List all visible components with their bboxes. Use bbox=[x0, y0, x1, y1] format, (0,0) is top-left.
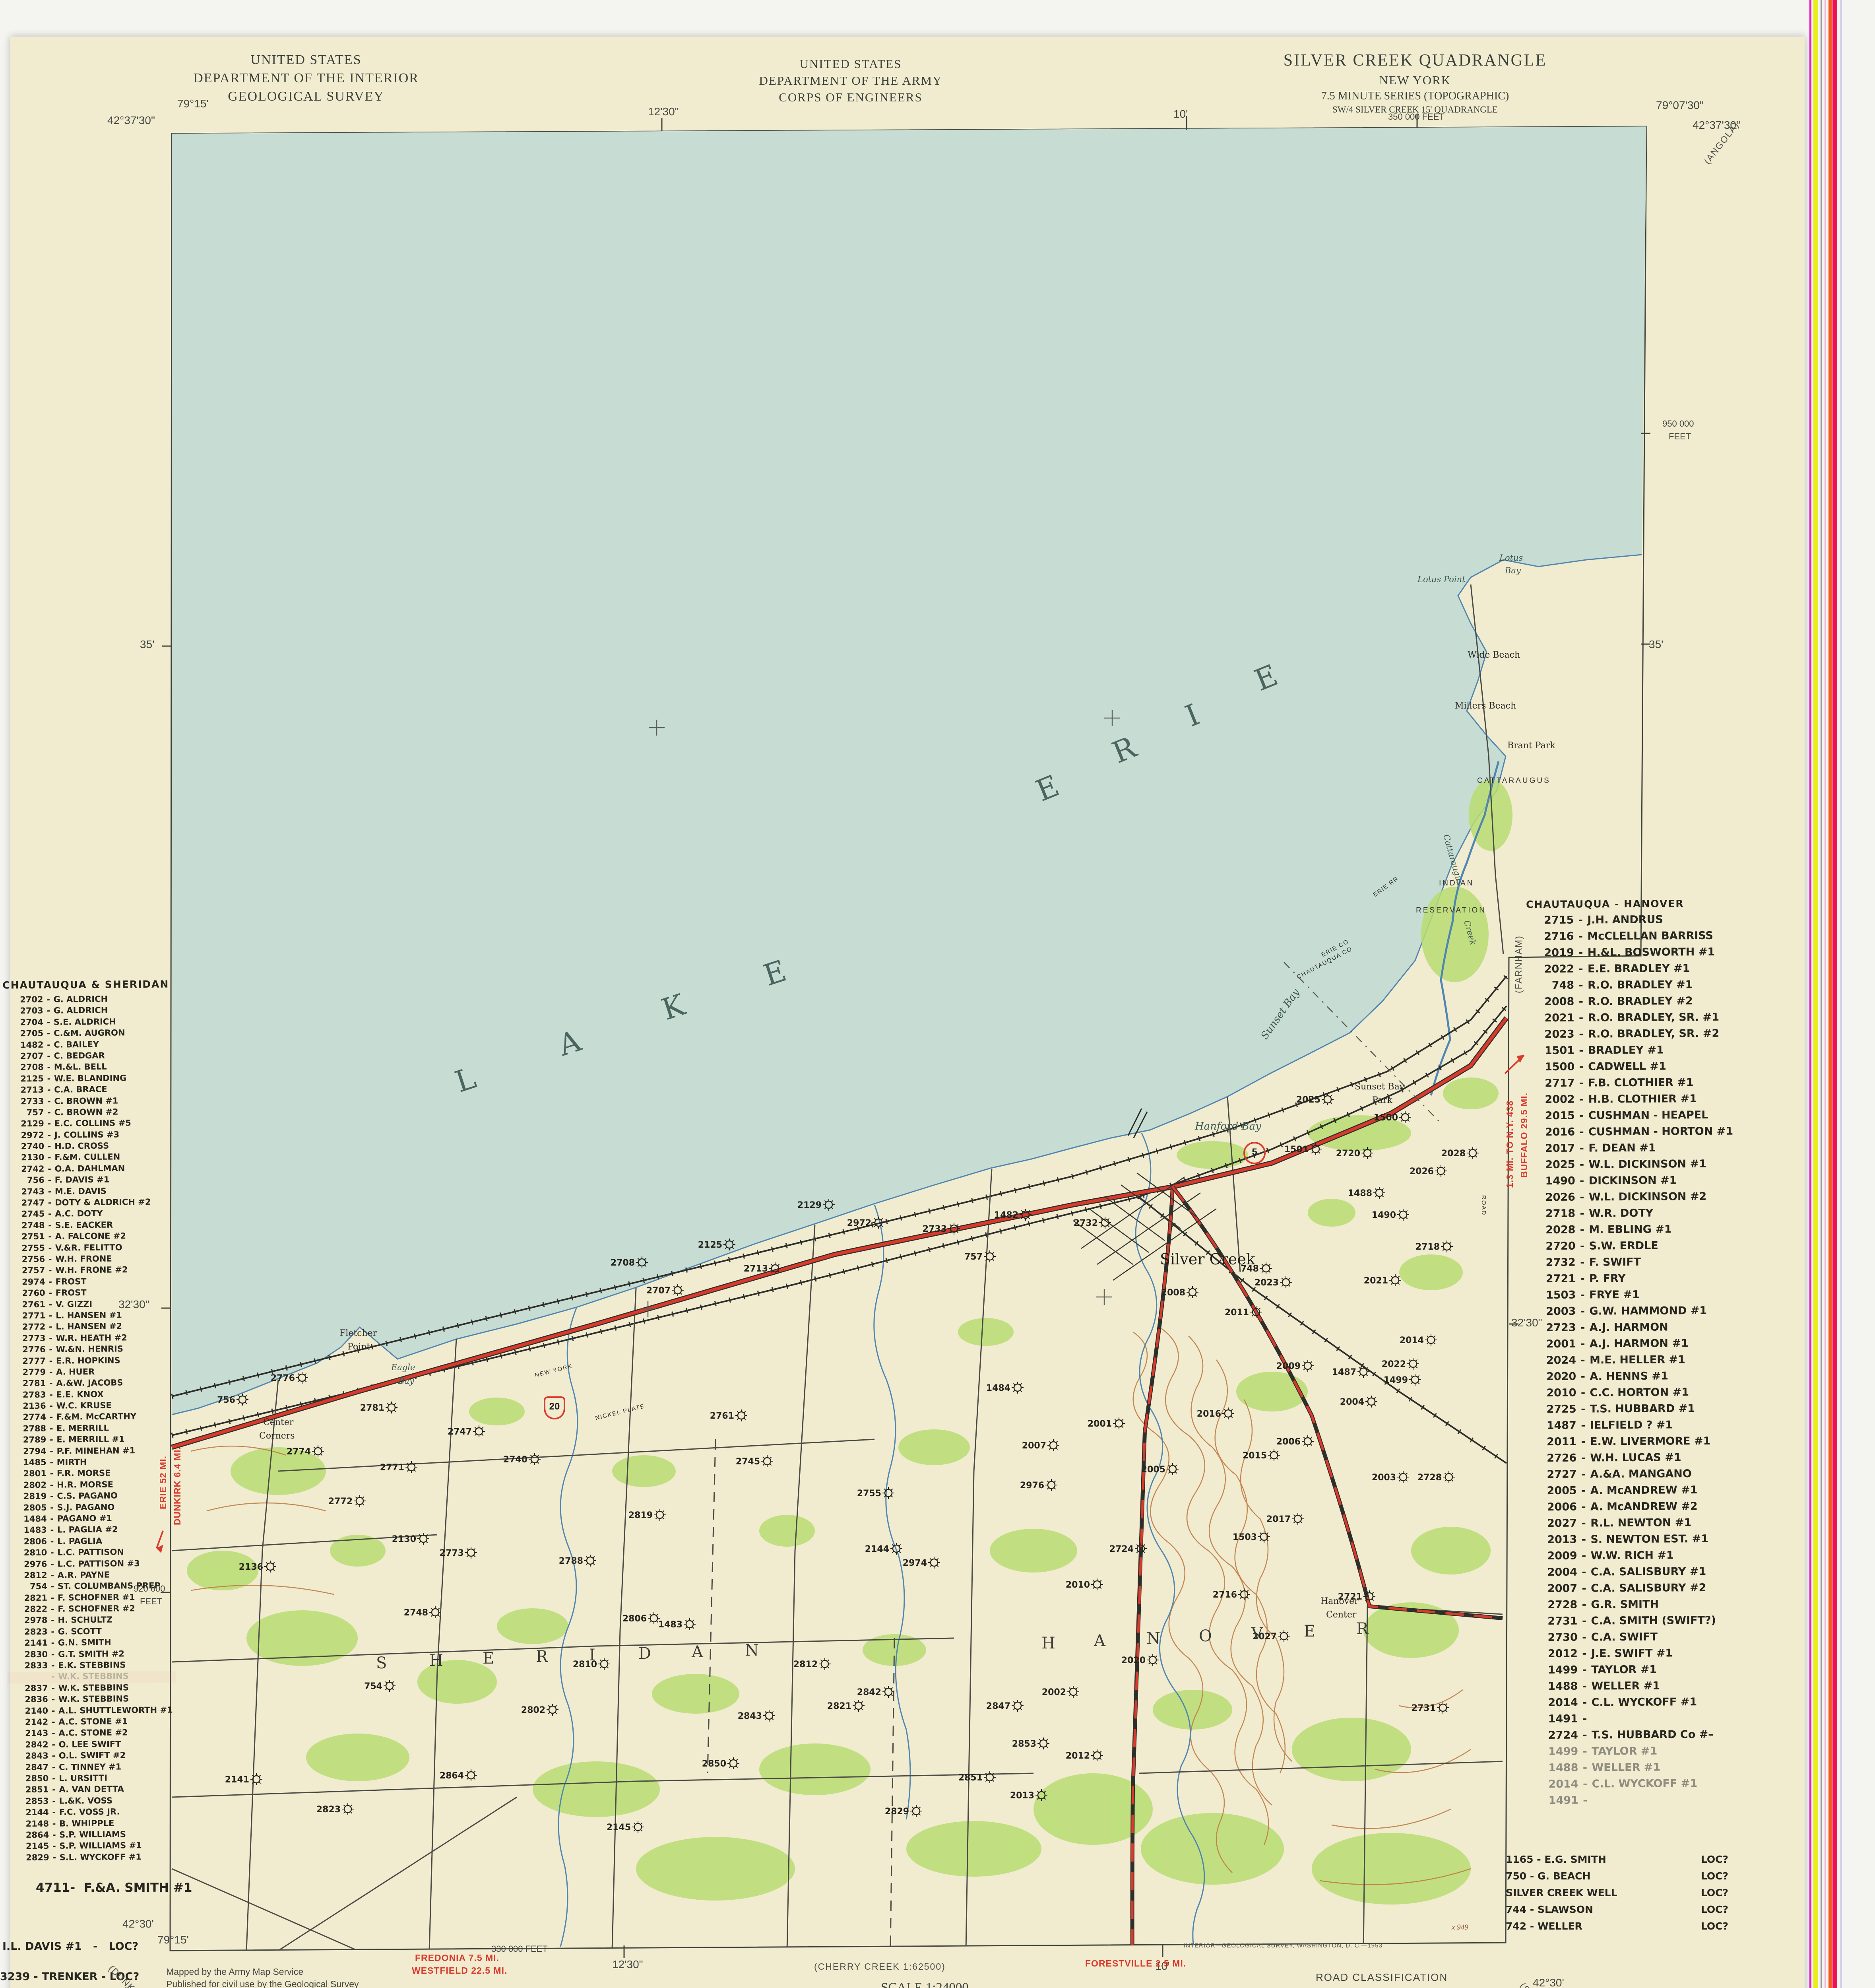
header-usgs: UNITED STATES DEPARTMENT OF THE INTERIOR… bbox=[167, 51, 445, 106]
dash: - bbox=[48, 1661, 58, 1672]
dash: - bbox=[49, 1796, 59, 1807]
dash: - bbox=[45, 1288, 56, 1300]
well-list-entry: 2972-J. COLLINS #3 bbox=[4, 1129, 173, 1142]
well-owner: O. LEE SWIFT bbox=[59, 1739, 121, 1751]
well-list-entry: 2014-C.L. WYCKOFF #1 bbox=[1531, 1776, 1875, 1795]
well-number: 1482 bbox=[3, 1040, 43, 1051]
svg-text:1487: 1487 bbox=[1332, 1367, 1356, 1377]
dash: - bbox=[45, 1232, 55, 1243]
well-owner: F. SCHOFNER #1 bbox=[58, 1592, 135, 1604]
well-list-entry: 1490-DICKINSON #1 bbox=[1528, 1173, 1875, 1192]
well-number: 2751 bbox=[4, 1232, 45, 1243]
svg-text:754: 754 bbox=[364, 1681, 382, 1691]
map-label: E bbox=[1304, 1623, 1319, 1640]
well-list-entry: 2823-G. SCOTT bbox=[7, 1626, 176, 1638]
svg-text:2141: 2141 bbox=[225, 1775, 249, 1785]
well-list-entry: 2001-A.J. HARMON #1 bbox=[1528, 1336, 1875, 1355]
well-owner: R.L. NEWTON #1 bbox=[1590, 1516, 1691, 1533]
dash: - bbox=[1577, 1582, 1591, 1598]
well-number: 2776 bbox=[5, 1345, 46, 1356]
well-list-entry: 1503-FRYE #1 bbox=[1528, 1287, 1875, 1306]
well-number: 2715 bbox=[1526, 914, 1574, 931]
well-number: 2143 bbox=[8, 1728, 48, 1740]
loc-name: 744 - SLAWSON bbox=[1506, 1904, 1593, 1920]
well-owner: A.R. PAYNE bbox=[58, 1570, 110, 1582]
well-number: 2717 bbox=[1527, 1077, 1574, 1094]
well-number: 2850 bbox=[8, 1774, 48, 1785]
well-list-entry: 2732-F. SWIFT bbox=[1528, 1255, 1875, 1273]
well-list-entry: 2756-W.H. FRONE bbox=[4, 1254, 173, 1266]
well-list-entry: 2836-W.K. STEBBINS bbox=[8, 1694, 176, 1706]
well-number: 2802 bbox=[6, 1480, 47, 1492]
well-list-entry: 2019-H.&L. BOSWORTH #1 bbox=[1526, 945, 1875, 963]
dash: - bbox=[49, 1841, 59, 1853]
well-number: 1488 bbox=[1530, 1762, 1578, 1778]
well-list-entry: 2745-A.C. DOTY bbox=[4, 1208, 173, 1221]
well-list-entry: 2772-L. HANSEN #2 bbox=[5, 1321, 174, 1334]
dash: - bbox=[1577, 1468, 1590, 1484]
well-number: 2794 bbox=[6, 1446, 46, 1458]
well-owner: E. MERRILL #1 bbox=[56, 1435, 125, 1446]
well-owner: E.E. KNOX bbox=[56, 1389, 103, 1401]
dash: - bbox=[45, 1266, 55, 1277]
well-number: 2028 bbox=[1528, 1224, 1575, 1241]
margin-label: FEET bbox=[1669, 432, 1691, 441]
dash: - bbox=[48, 1638, 58, 1650]
svg-text:1500: 1500 bbox=[1374, 1113, 1398, 1123]
well-number: 2713 bbox=[3, 1085, 44, 1097]
well-list-entry: 2716-McCLELLAN BARRISS bbox=[1526, 929, 1875, 947]
well-list-entry: 2733-C. BROWN #1 bbox=[3, 1095, 172, 1108]
well-number: 2731 bbox=[1530, 1615, 1577, 1632]
well-owner: W.K. STEBBINS bbox=[58, 1672, 129, 1683]
well-list-entry: 2145-S.P. WILLIAMS #1 bbox=[8, 1840, 177, 1853]
svg-text:2755: 2755 bbox=[857, 1489, 881, 1499]
quad-title: SILVER CREEK QUADRANGLE bbox=[1232, 49, 1598, 72]
well-list-entry: 2016-CUSHMAN - HORTON #1 bbox=[1527, 1124, 1875, 1143]
svg-text:2812: 2812 bbox=[793, 1660, 818, 1670]
well-number: 2002 bbox=[1527, 1093, 1575, 1110]
margin-label: 79°15' bbox=[177, 98, 209, 109]
dash: - bbox=[47, 1536, 57, 1548]
well-number: 2974 bbox=[4, 1277, 45, 1289]
well-number: 2789 bbox=[6, 1435, 46, 1446]
well-number: 2136 bbox=[6, 1401, 46, 1413]
well-number: 2747 bbox=[4, 1198, 45, 1209]
svg-text:2847: 2847 bbox=[986, 1701, 1010, 1711]
svg-text:2012: 2012 bbox=[1066, 1751, 1090, 1761]
well-list-entry: 2783-E.E. KNOX bbox=[5, 1389, 174, 1401]
well-list-entry: 2728-G.R. SMITH bbox=[1530, 1597, 1875, 1615]
well-number: 2978 bbox=[7, 1615, 47, 1627]
well-owner: W.K. STEBBINS bbox=[58, 1694, 129, 1706]
loc-entry: 742 - WELLERLOC? bbox=[1506, 1920, 1728, 1937]
svg-text:2009: 2009 bbox=[1276, 1361, 1301, 1371]
well-owner: TAYLOR #1 bbox=[1592, 1745, 1657, 1762]
well-number: 2728 bbox=[1530, 1599, 1577, 1615]
header-army-line1: UNITED STATES bbox=[712, 56, 990, 72]
well-list-entry: 2023-R.O. BRADLEY, SR. #2 bbox=[1527, 1027, 1875, 1045]
well-list-entry: 2024-M.E. HELLER #1 bbox=[1528, 1353, 1875, 1371]
map-label: Bay bbox=[1505, 566, 1521, 575]
header-army-line3: CORPS OF ENGINEERS bbox=[712, 89, 990, 106]
well-list-entry: 2011-E.W. LIVERMORE #1 bbox=[1529, 1434, 1875, 1452]
margin-label: FREDONIA 7.5 MI. bbox=[415, 1953, 499, 1963]
loc-entry: 744 - SLAWSONLOC? bbox=[1506, 1904, 1728, 1920]
dash: - bbox=[1576, 1321, 1590, 1338]
well-number: 2703 bbox=[3, 1006, 43, 1017]
well-list-entry: 2731-C.A. SMITH (SWIFT?) bbox=[1530, 1613, 1875, 1632]
well-owner: C.A. BRACE bbox=[54, 1085, 107, 1096]
well-number: 1484 bbox=[6, 1514, 47, 1526]
well-list-entry: 2017-F. DEAN #1 bbox=[1527, 1141, 1875, 1159]
svg-text:1499: 1499 bbox=[1384, 1375, 1408, 1385]
well-list-entry: 2008-R.O. BRADLEY #2 bbox=[1526, 994, 1875, 1012]
loc-name: 750 - G. BEACH bbox=[1506, 1870, 1590, 1887]
well-owner: J.E. SWIFT #1 bbox=[1591, 1647, 1673, 1664]
well-number: 2144 bbox=[8, 1807, 49, 1819]
map-label: I bbox=[589, 1647, 599, 1664]
dash: - bbox=[48, 1774, 59, 1785]
well-owner: E.C. COLLINS #5 bbox=[54, 1118, 131, 1130]
dash: - bbox=[1578, 1680, 1591, 1696]
well-number: 2976 bbox=[6, 1559, 47, 1571]
dash: - bbox=[1574, 963, 1588, 979]
svg-text:2773: 2773 bbox=[440, 1548, 464, 1558]
well-number bbox=[7, 1672, 48, 1683]
well-owner: W.L. DICKINSON #1 bbox=[1588, 1158, 1706, 1175]
well-number: 2725 bbox=[1529, 1403, 1576, 1420]
svg-text:2707: 2707 bbox=[646, 1286, 671, 1296]
map-label: Eagle bbox=[391, 1363, 415, 1372]
well-list-entry: 1500-CADWELL #1 bbox=[1527, 1059, 1875, 1077]
well-owner: A.C. STONE #2 bbox=[58, 1728, 128, 1740]
well-number: 2851 bbox=[8, 1785, 48, 1796]
svg-text:2716: 2716 bbox=[1213, 1590, 1237, 1600]
well-owner: H. SCHULTZ bbox=[58, 1615, 112, 1627]
well-number: 2718 bbox=[1528, 1208, 1575, 1224]
dash: - bbox=[47, 1503, 57, 1514]
svg-text:2776: 2776 bbox=[271, 1373, 295, 1383]
well-number: 2006 bbox=[1529, 1501, 1577, 1518]
well-owner: C.L. WYCKOFF #1 bbox=[1592, 1777, 1698, 1794]
dash: - bbox=[44, 1108, 54, 1119]
svg-text:2829: 2829 bbox=[885, 1807, 909, 1817]
dash: - bbox=[1574, 1044, 1588, 1061]
well-list-entry: 2833-E.K. STEBBINS bbox=[7, 1660, 176, 1672]
well-owner: W.L. DICKINSON #2 bbox=[1589, 1190, 1707, 1208]
svg-text:1483: 1483 bbox=[658, 1620, 683, 1630]
well-list-entry: 2777-E.R. HOPKINS bbox=[5, 1355, 174, 1367]
map-label: N bbox=[1146, 1630, 1164, 1647]
well-number: 2833 bbox=[7, 1661, 48, 1672]
dash: - bbox=[1574, 1012, 1588, 1028]
loc-question: LOC? bbox=[1701, 1904, 1728, 1920]
dash: - bbox=[1576, 1289, 1589, 1305]
dash: - bbox=[1578, 1696, 1592, 1712]
svg-text:2821: 2821 bbox=[827, 1701, 851, 1711]
map-label: Millers Beach bbox=[1455, 701, 1516, 711]
map-label: Center bbox=[1326, 1610, 1356, 1619]
well-owner: C.L. WYCKOFF #1 bbox=[1592, 1696, 1697, 1712]
well-owner: G.N. SMITH bbox=[58, 1638, 111, 1649]
header-army: UNITED STATES DEPARTMENT OF THE ARMY COR… bbox=[712, 56, 990, 106]
dash: - bbox=[47, 1469, 57, 1480]
dash: - bbox=[45, 1322, 56, 1334]
well-list-entry: 2730-C.A. SWIFT bbox=[1530, 1630, 1875, 1648]
well-owner: H.&L. BOSWORTH #1 bbox=[1588, 946, 1715, 963]
well-owner: W.R. DOTY bbox=[1589, 1207, 1653, 1224]
well-number: 1490 bbox=[1528, 1175, 1575, 1192]
well-list-entry: 1487-IELFIELD ? #1 bbox=[1529, 1418, 1875, 1436]
well-list-entry: -W.K. STEBBINS bbox=[7, 1671, 176, 1683]
well-number: 2774 bbox=[6, 1412, 46, 1424]
well-number: 1491 bbox=[1531, 1794, 1578, 1811]
svg-text:2144: 2144 bbox=[865, 1544, 889, 1554]
well-number: 2704 bbox=[3, 1017, 43, 1029]
well-number: 2025 bbox=[1527, 1159, 1575, 1175]
well-owner: IELFIELD ? #1 bbox=[1590, 1419, 1673, 1435]
well-list-entry: 2801-F.R. MORSE bbox=[6, 1468, 175, 1480]
well-list-entry: 1484-PAGANO #1 bbox=[6, 1513, 175, 1525]
well-owner: G.W. HAMMOND #1 bbox=[1589, 1305, 1707, 1322]
well-owner: FROST bbox=[56, 1288, 87, 1299]
well-list-entry: 2747-DOTY & ALDRICH #2 bbox=[4, 1197, 173, 1209]
well-list-entry: 2708-M.&L. BELL bbox=[3, 1062, 172, 1074]
well-number: 2732 bbox=[1528, 1256, 1576, 1273]
map-label: Wide Beach bbox=[1468, 650, 1520, 660]
header-usgs-line1: UNITED STATES bbox=[167, 51, 445, 69]
svg-text:2850: 2850 bbox=[702, 1759, 726, 1769]
dash: - bbox=[47, 1525, 57, 1537]
map-label: V bbox=[1251, 1625, 1267, 1642]
margin-label: FEET bbox=[140, 1597, 162, 1606]
well-list-entry: 2002-H.B. CLOTHIER #1 bbox=[1527, 1092, 1875, 1110]
dash: - bbox=[47, 1491, 57, 1503]
well-list-entry: 2740-H.D. CROSS bbox=[4, 1141, 173, 1153]
dash: - bbox=[48, 1762, 59, 1774]
map-label: Park bbox=[1372, 1096, 1392, 1105]
dash: - bbox=[1575, 1175, 1589, 1191]
well-list-entry: 2148-B. WHIPPLE bbox=[8, 1818, 177, 1830]
well-number: 2011 bbox=[1529, 1436, 1576, 1452]
dash: - bbox=[1576, 1370, 1590, 1386]
well-list-entry: 2007-C.A. SALISBURY #2 bbox=[1530, 1581, 1875, 1599]
well-list-entry: 2015-CUSHMAN - HEAPEL bbox=[1527, 1108, 1875, 1126]
well-number: 2836 bbox=[8, 1695, 48, 1706]
well-list-entry: 2850-L. URSITTI bbox=[8, 1773, 177, 1785]
svg-text:1484: 1484 bbox=[986, 1383, 1010, 1393]
svg-text:2732: 2732 bbox=[1074, 1218, 1098, 1228]
well-owner: W.H. FRONE bbox=[55, 1254, 112, 1266]
well-list-entry: 2851-A. VAN DETTA bbox=[8, 1784, 177, 1796]
well-owner: PAGANO #1 bbox=[57, 1514, 112, 1525]
well-number: 2730 bbox=[1530, 1631, 1578, 1648]
well-list-entry: 2810-L.C. PATTISON bbox=[6, 1547, 175, 1559]
well-owner: C.A. SALISBURY #1 bbox=[1591, 1565, 1706, 1582]
well-owner: A. HUER bbox=[56, 1367, 95, 1378]
dash: - bbox=[44, 1130, 54, 1142]
dash: - bbox=[46, 1345, 56, 1356]
well-list-entry: 2707-C. BEDGAR bbox=[3, 1050, 172, 1062]
svg-text:2006: 2006 bbox=[1276, 1437, 1301, 1447]
svg-text:1503: 1503 bbox=[1233, 1532, 1257, 1542]
svg-text:2819: 2819 bbox=[628, 1510, 653, 1520]
map-label: S bbox=[376, 1655, 391, 1672]
well-owner: A. HENNS #1 bbox=[1590, 1370, 1668, 1386]
well-owner: B. WHIPPLE bbox=[59, 1818, 114, 1830]
svg-text:2731: 2731 bbox=[1412, 1703, 1436, 1713]
well-owner: O.L. SWIFT #2 bbox=[59, 1751, 126, 1763]
well-list-entry: 2022-E.E. BRADLEY #1 bbox=[1526, 961, 1875, 980]
well-owner: M. EBLING #1 bbox=[1589, 1223, 1672, 1240]
svg-text:2014: 2014 bbox=[1400, 1336, 1424, 1345]
loc-question: LOC? bbox=[1701, 1854, 1728, 1870]
svg-text:2007: 2007 bbox=[1022, 1441, 1046, 1451]
svg-text:2713: 2713 bbox=[744, 1264, 768, 1274]
margin-label: 920 000 bbox=[134, 1584, 165, 1593]
well-owner: FRYE #1 bbox=[1589, 1289, 1640, 1305]
well-number: 2148 bbox=[8, 1819, 49, 1830]
dash: - bbox=[48, 1728, 58, 1740]
well-number: 2012 bbox=[1530, 1648, 1578, 1664]
dash: - bbox=[1575, 1240, 1589, 1256]
svg-text:2145: 2145 bbox=[607, 1823, 631, 1833]
svg-text:1490: 1490 bbox=[1372, 1210, 1396, 1220]
well-list-entry: 2843-O.L. SWIFT #2 bbox=[8, 1750, 177, 1763]
well-owner: S.J. PAGANO bbox=[57, 1502, 114, 1514]
well-number: 2812 bbox=[7, 1571, 47, 1582]
well-owner: C. BAILEY bbox=[54, 1039, 99, 1051]
svg-text:2843: 2843 bbox=[738, 1711, 762, 1721]
margin-label: FORESTVILLE 2.5 MI. bbox=[1085, 1959, 1186, 1968]
well-owner: G. SCOTT bbox=[58, 1627, 102, 1638]
well-number: 2125 bbox=[3, 1074, 44, 1085]
well-list-hanover: CHAUTAUQUA - HANOVER 2715-J.H. ANDRUS271… bbox=[1526, 897, 1875, 1811]
svg-text:2011: 2011 bbox=[1225, 1308, 1249, 1318]
well-list-entry: 2130-F.&M. CULLEN bbox=[4, 1152, 173, 1164]
well-list-entry: 2794-P.F. MINEHAN #1 bbox=[6, 1445, 175, 1458]
well-list-entry: 2012-J.E. SWIFT #1 bbox=[1530, 1646, 1875, 1664]
svg-text:2003: 2003 bbox=[1372, 1473, 1396, 1483]
dash: - bbox=[1576, 1386, 1590, 1403]
dash: - bbox=[43, 1017, 54, 1029]
dash: - bbox=[48, 1672, 58, 1683]
map-label: Lotus bbox=[1499, 553, 1523, 562]
well-number: 2823 bbox=[7, 1627, 48, 1639]
well-list-entry: 1501-BRADLEY #1 bbox=[1527, 1043, 1875, 1061]
dash: - bbox=[45, 1277, 55, 1288]
well-number: 2745 bbox=[4, 1209, 45, 1221]
well-owner: DICKINSON #1 bbox=[1589, 1174, 1677, 1191]
well-owner: S. NEWTON EST. #1 bbox=[1590, 1533, 1708, 1550]
well-owner: G. ALDRICH bbox=[54, 1006, 108, 1017]
well-number: 2772 bbox=[5, 1322, 45, 1334]
svg-text:2788: 2788 bbox=[559, 1556, 583, 1566]
well-number: 1503 bbox=[1528, 1289, 1576, 1306]
dash: - bbox=[1578, 1778, 1592, 1794]
well-owner: F.C. VOSS JR. bbox=[59, 1807, 120, 1819]
well-owner: W.K. STEBBINS bbox=[58, 1683, 129, 1695]
dash: - bbox=[1576, 1435, 1590, 1452]
well-list-entry: 2847-C. TINNEY #1 bbox=[8, 1761, 177, 1774]
well-number: 2014 bbox=[1530, 1697, 1578, 1713]
well-number: 2864 bbox=[8, 1830, 49, 1842]
well-number: 1499 bbox=[1530, 1745, 1578, 1762]
svg-text:1488: 1488 bbox=[1348, 1188, 1372, 1198]
svg-text:2023: 2023 bbox=[1255, 1278, 1279, 1288]
left-list-big-entry: 4711- F.&A. SMITH #1 bbox=[36, 1881, 192, 1895]
well-owner: M.E. HELLER #1 bbox=[1590, 1353, 1685, 1370]
loc-question-list: 1165 - E.G. SMITHLOC?750 - G. BEACHLOC?S… bbox=[1506, 1854, 1728, 1937]
well-number: 2726 bbox=[1529, 1452, 1576, 1469]
dash: - bbox=[45, 1243, 55, 1254]
well-number: 2837 bbox=[8, 1683, 48, 1695]
svg-text:2017: 2017 bbox=[1266, 1514, 1291, 1524]
well-number: 2740 bbox=[4, 1142, 44, 1153]
well-number: 2727 bbox=[1529, 1468, 1577, 1485]
dash: - bbox=[1576, 1419, 1590, 1435]
svg-text:2001: 2001 bbox=[1088, 1419, 1112, 1429]
well-number: 2760 bbox=[5, 1288, 45, 1300]
well-list-entry: 2727-A.&A. MANGANO bbox=[1529, 1467, 1875, 1485]
well-number: 2023 bbox=[1527, 1028, 1574, 1045]
well-number: 2017 bbox=[1527, 1142, 1575, 1159]
well-number: 1483 bbox=[6, 1525, 47, 1537]
dash: - bbox=[1576, 1452, 1590, 1468]
header-usgs-line2: DEPARTMENT OF THE INTERIOR bbox=[167, 69, 445, 87]
dash: - bbox=[44, 1085, 54, 1097]
margin-label: 12'30" bbox=[648, 106, 679, 117]
well-owner: C.A. SALISBURY #2 bbox=[1591, 1582, 1706, 1599]
well-owner: BRADLEY #1 bbox=[1588, 1044, 1664, 1061]
well-owner: MIRTH bbox=[57, 1457, 87, 1469]
map-label: Silver Creek bbox=[1160, 1252, 1255, 1268]
header-quadrangle: SILVER CREEK QUADRANGLE NEW YORK 7.5 MIN… bbox=[1232, 49, 1598, 116]
map-label: Corners bbox=[259, 1431, 295, 1441]
svg-text:2028: 2028 bbox=[1441, 1149, 1466, 1159]
dash: - bbox=[1577, 1501, 1590, 1517]
well-owner: S.E. ALDRICH bbox=[54, 1017, 116, 1028]
well-number: 1500 bbox=[1527, 1061, 1574, 1077]
well-list-entry: 2819-C.S. PAGANO bbox=[6, 1491, 175, 1503]
map-label: Sunset Bay bbox=[1355, 1082, 1404, 1091]
dash: - bbox=[1576, 1273, 1589, 1289]
well-number: 2026 bbox=[1528, 1191, 1575, 1208]
well-list-entry: 1499-TAYLOR #1 bbox=[1530, 1662, 1875, 1681]
well-number: 2810 bbox=[6, 1548, 47, 1559]
margin-label: DUNKIRK 6.4 MI. bbox=[173, 1446, 182, 1525]
dash: - bbox=[49, 1830, 59, 1841]
well-number: 2707 bbox=[3, 1051, 44, 1063]
loc-name: SILVER CREEK WELL bbox=[1506, 1887, 1617, 1904]
well-list-entry: 2788-E. MERRILL bbox=[6, 1423, 175, 1435]
well-list-entry: 2723-A.J. HARMON bbox=[1528, 1320, 1875, 1338]
well-owner: A.&A. MANGANO bbox=[1590, 1468, 1692, 1484]
well-owner: R.O. BRADLEY #1 bbox=[1588, 978, 1693, 995]
svg-text:2020: 2020 bbox=[1121, 1656, 1146, 1666]
well-owner: A. FALCONE #2 bbox=[55, 1231, 126, 1243]
svg-text:2823: 2823 bbox=[316, 1805, 341, 1815]
svg-text:1501: 1501 bbox=[1284, 1145, 1309, 1155]
dash: - bbox=[1578, 1794, 1592, 1810]
dash: - bbox=[44, 1153, 54, 1164]
dash: - bbox=[1578, 1631, 1591, 1647]
dash: - bbox=[44, 1164, 54, 1175]
dash: - bbox=[1575, 1224, 1589, 1240]
map-label: Brant Park bbox=[1507, 741, 1555, 750]
well-number: 2010 bbox=[1528, 1387, 1576, 1404]
